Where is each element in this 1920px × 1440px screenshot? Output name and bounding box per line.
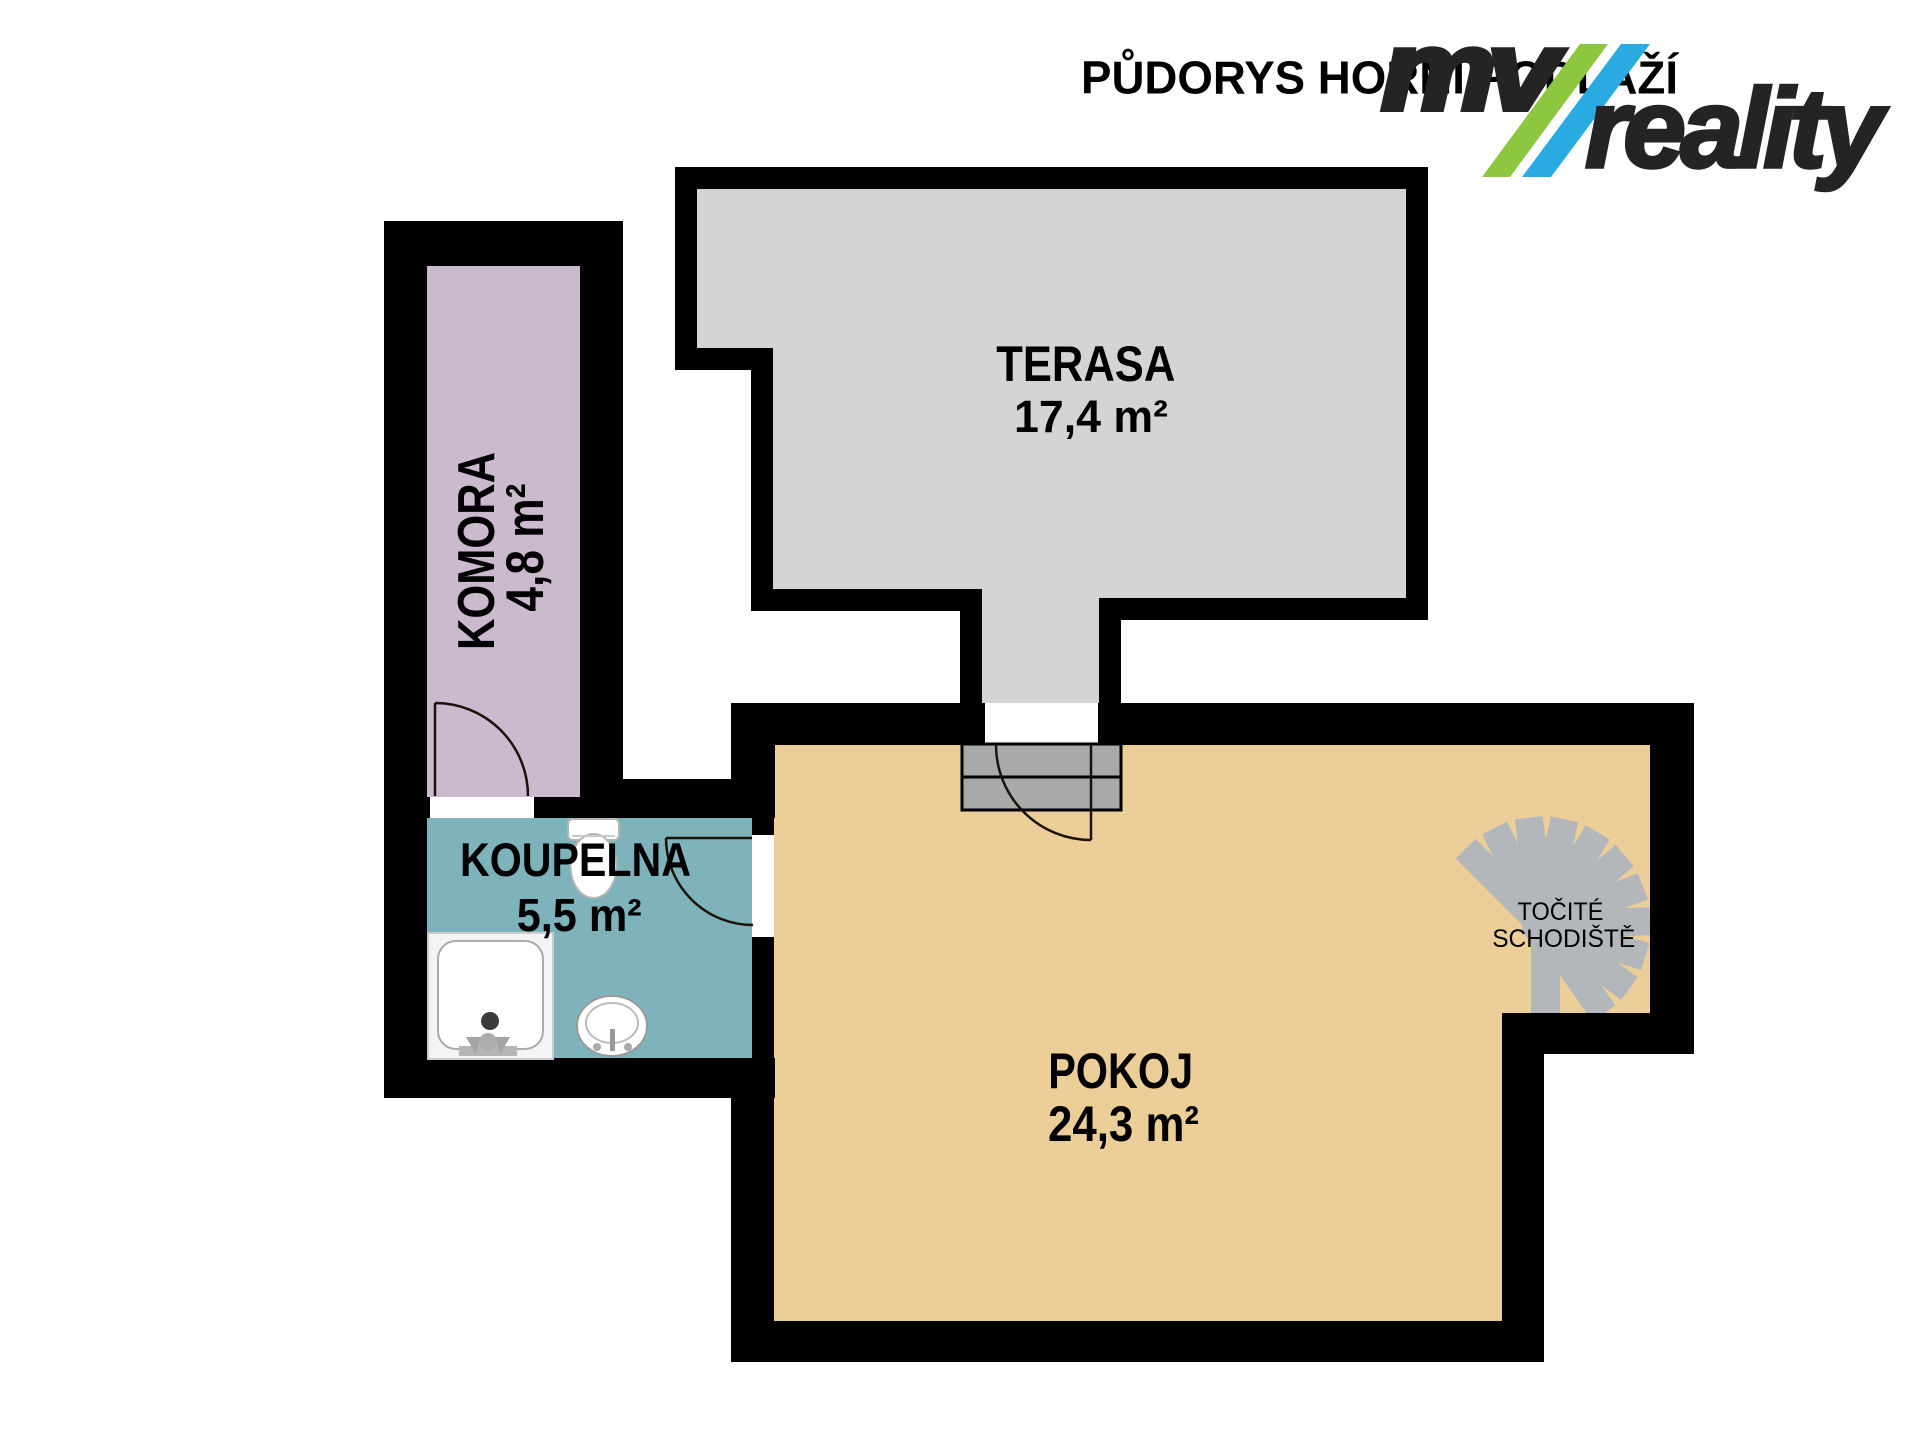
svg-text:KOUPELNA: KOUPELNA bbox=[460, 833, 691, 886]
svg-text:24,3 m²: 24,3 m² bbox=[1048, 1096, 1199, 1152]
svg-text:SCHODIŠTĚ: SCHODIŠTĚ bbox=[1492, 924, 1635, 953]
svg-text:4,8 m²: 4,8 m² bbox=[496, 484, 555, 612]
svg-text:TOČITÉ: TOČITÉ bbox=[1518, 897, 1604, 926]
svg-text:reality: reality bbox=[1585, 66, 1888, 191]
svg-text:POKOJ: POKOJ bbox=[1048, 1043, 1193, 1099]
svg-text:17,4 m²: 17,4 m² bbox=[1014, 391, 1168, 442]
svg-text:TERASA: TERASA bbox=[996, 336, 1175, 392]
svg-text:5,5 m²: 5,5 m² bbox=[517, 889, 642, 941]
